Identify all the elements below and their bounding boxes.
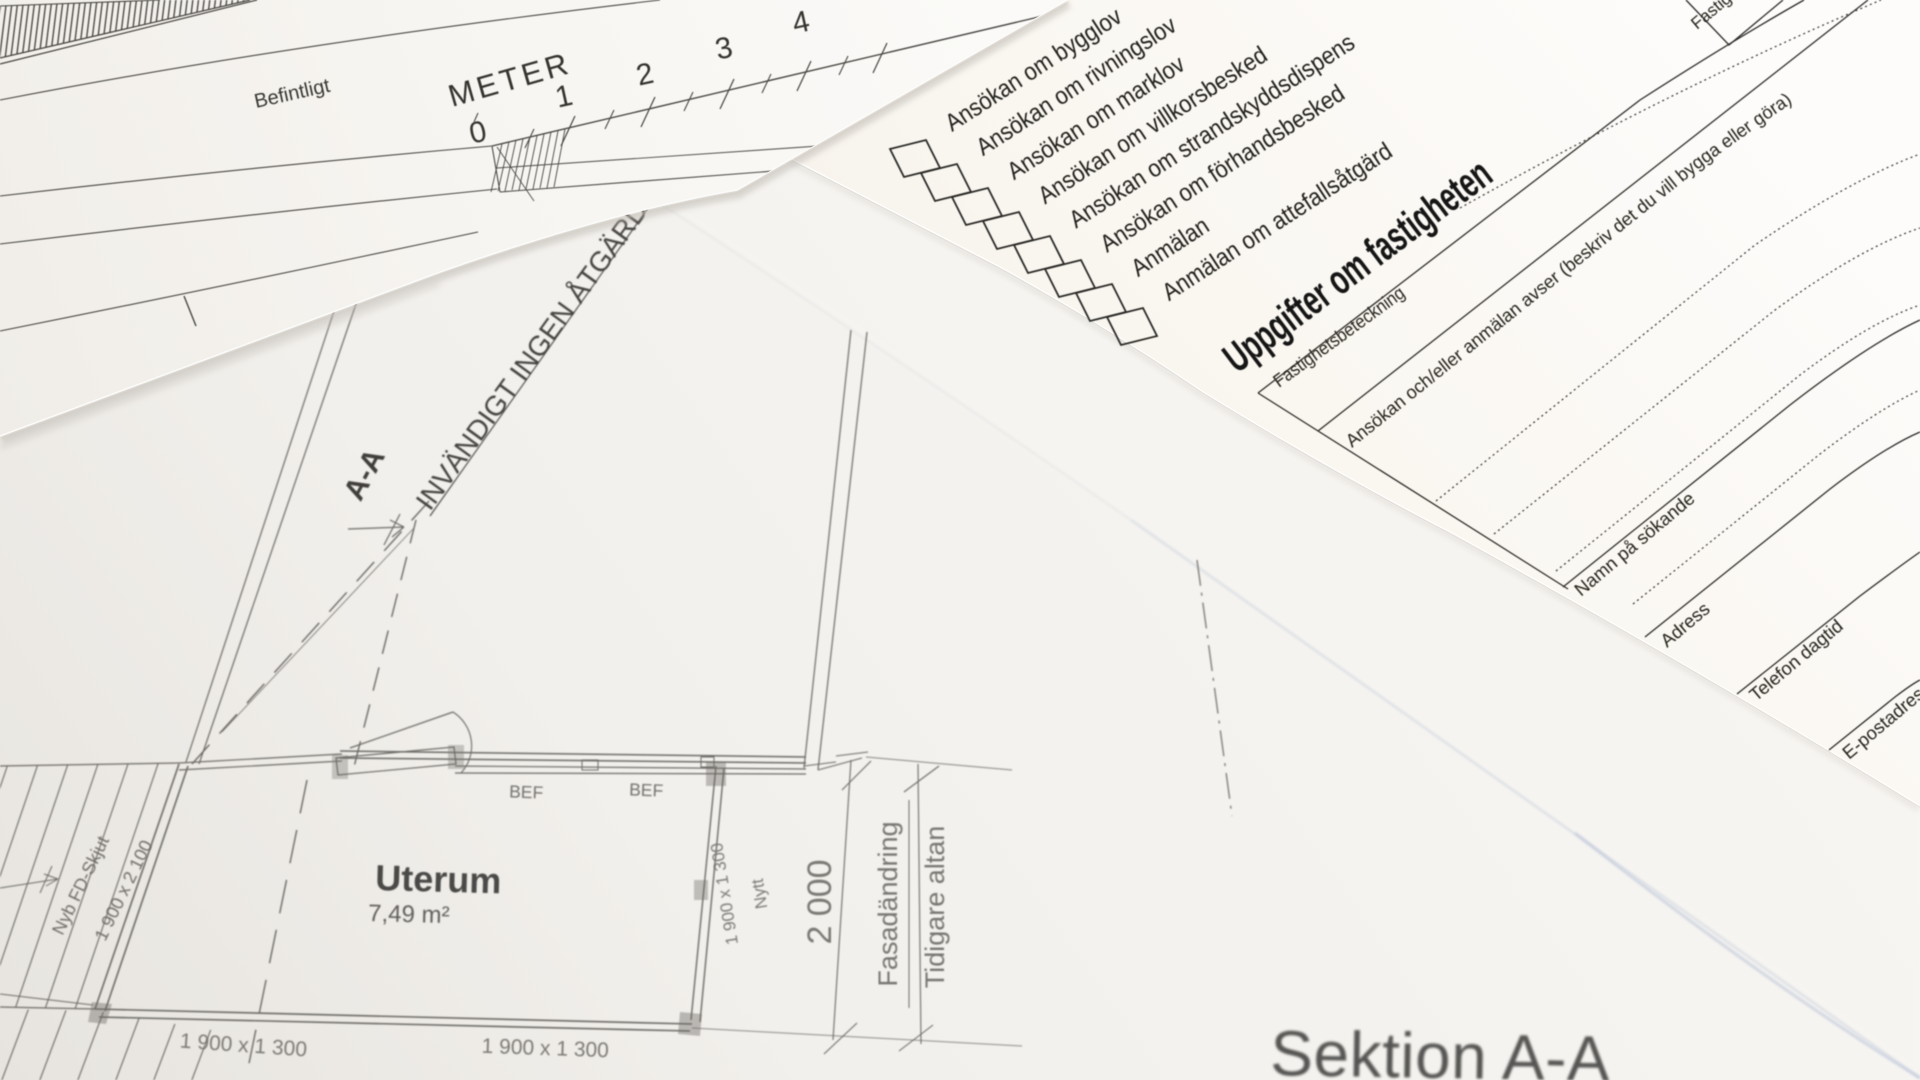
svg-text:BEF: BEF — [509, 781, 544, 802]
svg-text:2 000: 2 000 — [801, 859, 839, 944]
svg-text:Tidigare altan: Tidigare altan — [920, 826, 950, 989]
svg-text:7,49 m²: 7,49 m² — [368, 900, 450, 929]
svg-text:Uterum: Uterum — [375, 857, 502, 901]
svg-text:BEF: BEF — [629, 779, 664, 800]
svg-text:1 900 x 1 300: 1 900 x 1 300 — [481, 1035, 609, 1062]
svg-text:Fasadändring: Fasadändring — [873, 821, 903, 986]
svg-text:Sektion A-A: Sektion A-A — [1270, 1017, 1611, 1080]
